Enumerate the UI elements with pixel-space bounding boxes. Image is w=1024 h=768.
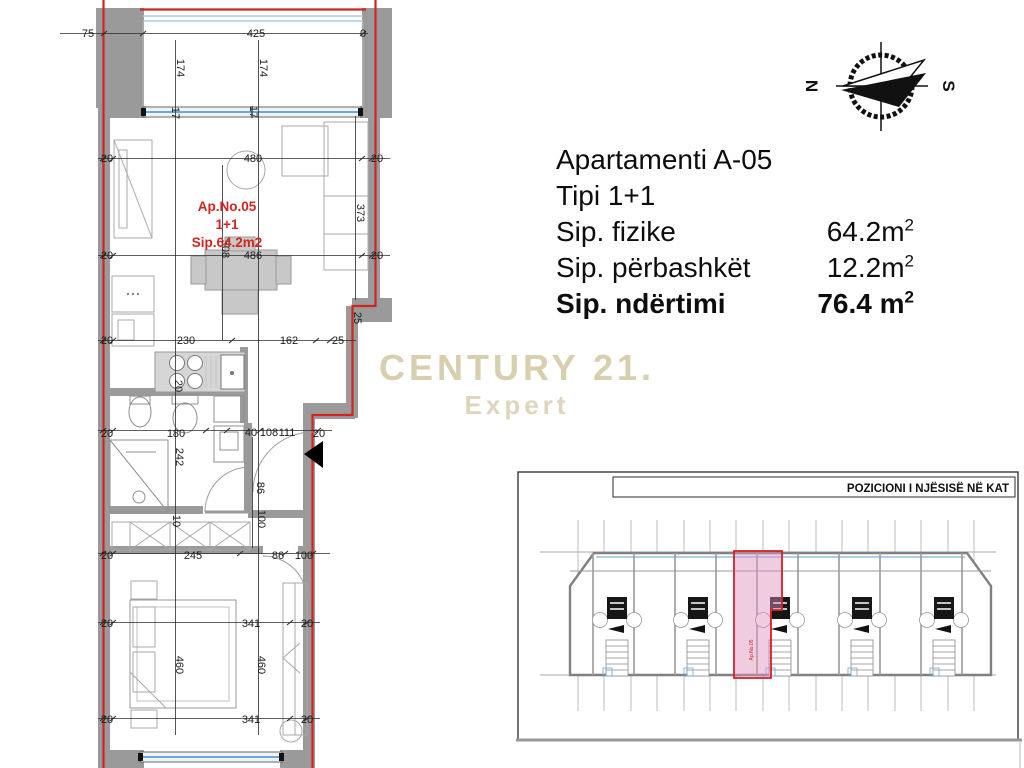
washing-machine: [214, 426, 244, 462]
dim-label: 174: [257, 59, 269, 77]
info-label: Sip. përbashkët: [556, 250, 751, 286]
dim-label: 20: [371, 250, 383, 262]
bath-sink: [129, 397, 151, 427]
stove-burner: [188, 356, 203, 371]
shaft: [214, 396, 244, 422]
dim-label: 20: [101, 335, 113, 347]
info-value: 76.4 m2: [817, 286, 914, 322]
nightstand: [131, 581, 157, 599]
info-label: Sip. ndërtimi: [556, 286, 726, 322]
info-row-ndertimi: Sip. ndërtimi 76.4 m2: [556, 286, 914, 322]
dim-label: 460: [173, 656, 185, 674]
bedroom-door-arc: [263, 556, 307, 599]
drawing-canvas: 75 425 0 174 174 17 17 20 480 20 373 508…: [0, 0, 1024, 768]
info-value: 64.2m2: [827, 214, 914, 250]
bedroom: [130, 581, 307, 742]
dim-label: 17: [169, 107, 181, 119]
stove-burner: [188, 374, 203, 389]
dim-label: 486: [244, 250, 262, 262]
plan-unit-area: Sip.64.2m2: [192, 235, 263, 250]
dim-label: 111: [279, 427, 296, 439]
dim-label: 162: [280, 335, 298, 347]
dim-label: 100: [295, 550, 313, 562]
dim-label: 373: [354, 204, 366, 222]
dim-label: 460: [255, 656, 267, 674]
dim-label: 100: [255, 510, 267, 528]
dim-label: 20: [101, 618, 113, 630]
dim-label: 20: [313, 428, 325, 440]
dim-label: 230: [177, 335, 195, 347]
apartment-title: Apartamenti A-05: [556, 142, 914, 178]
dim-label: 341: [242, 618, 260, 630]
dim-label: 25: [332, 335, 344, 347]
dim-label: 242: [173, 448, 185, 466]
info-row-perbashket: Sip. përbashkët 12.2m2: [556, 250, 914, 286]
dim-label: 20: [371, 153, 383, 165]
floorplan-page: 75 425 0 174 174 17 17 20 480 20 373 508…: [0, 0, 1024, 768]
dim-label: 20: [301, 618, 313, 630]
plan-unit-type: 1+1: [216, 217, 239, 232]
dim-label: 174: [174, 59, 186, 77]
dim-label: 245: [184, 550, 202, 562]
stove-burner: [170, 356, 185, 371]
key-plan: POZICIONI I NJËSISË NË KAT: [516, 472, 1022, 768]
dim-label: 20: [101, 428, 113, 440]
dim-label: 20: [172, 380, 184, 392]
bath-door-arc: [205, 467, 249, 512]
dim-label: 20: [301, 714, 313, 726]
plan-unit-label: Ap.No.05 1+1 Sip.64.2m2: [192, 199, 263, 250]
dim-label: 17: [247, 106, 259, 118]
highlighted-unit-label: Ap.No.05: [749, 639, 755, 660]
info-label: Sip. fizike: [556, 214, 676, 250]
dim-label: 20: [101, 714, 113, 726]
nightstand: [131, 710, 157, 728]
info-value: 12.2m2: [827, 250, 914, 286]
furniture: [110, 122, 368, 742]
key-plan-title: POZICIONI I NJËSISË NË KAT: [847, 482, 1009, 495]
dim-label: 75: [82, 28, 94, 40]
floor-plan: 75 425 0 174 174 17 17 20 480 20 373 508…: [60, 0, 392, 768]
compass-south-label: S: [939, 80, 958, 91]
dim-label: 341: [242, 714, 260, 726]
compass: N S: [802, 42, 958, 131]
dim-label: 20: [101, 550, 113, 562]
dim-label: 25: [351, 312, 363, 324]
info-row-fizike: Sip. fizike 64.2m2: [556, 214, 914, 250]
dim-label: 10: [170, 515, 182, 527]
dim-label: 40: [245, 427, 257, 439]
living-wardrobe: [114, 140, 152, 238]
pillow: [133, 607, 155, 647]
dim-label: 0: [360, 28, 366, 40]
dim-label: 86: [254, 482, 266, 494]
dim-label: 86: [272, 550, 284, 562]
plan-unit-number: Ap.No.05: [198, 199, 257, 214]
dim-label: 20: [101, 250, 113, 262]
apartment-type: Tipi 1+1: [556, 178, 914, 214]
dim-label: 20: [101, 153, 113, 165]
dim-label: 425: [247, 28, 265, 40]
dim-label: 108: [260, 427, 278, 439]
dim-label: 480: [244, 153, 262, 165]
apartment-info: Apartamenti A-05 Tipi 1+1 Sip. fizike 64…: [556, 142, 914, 322]
compass-north-label: N: [802, 80, 821, 92]
dim-label: 180: [167, 428, 185, 440]
